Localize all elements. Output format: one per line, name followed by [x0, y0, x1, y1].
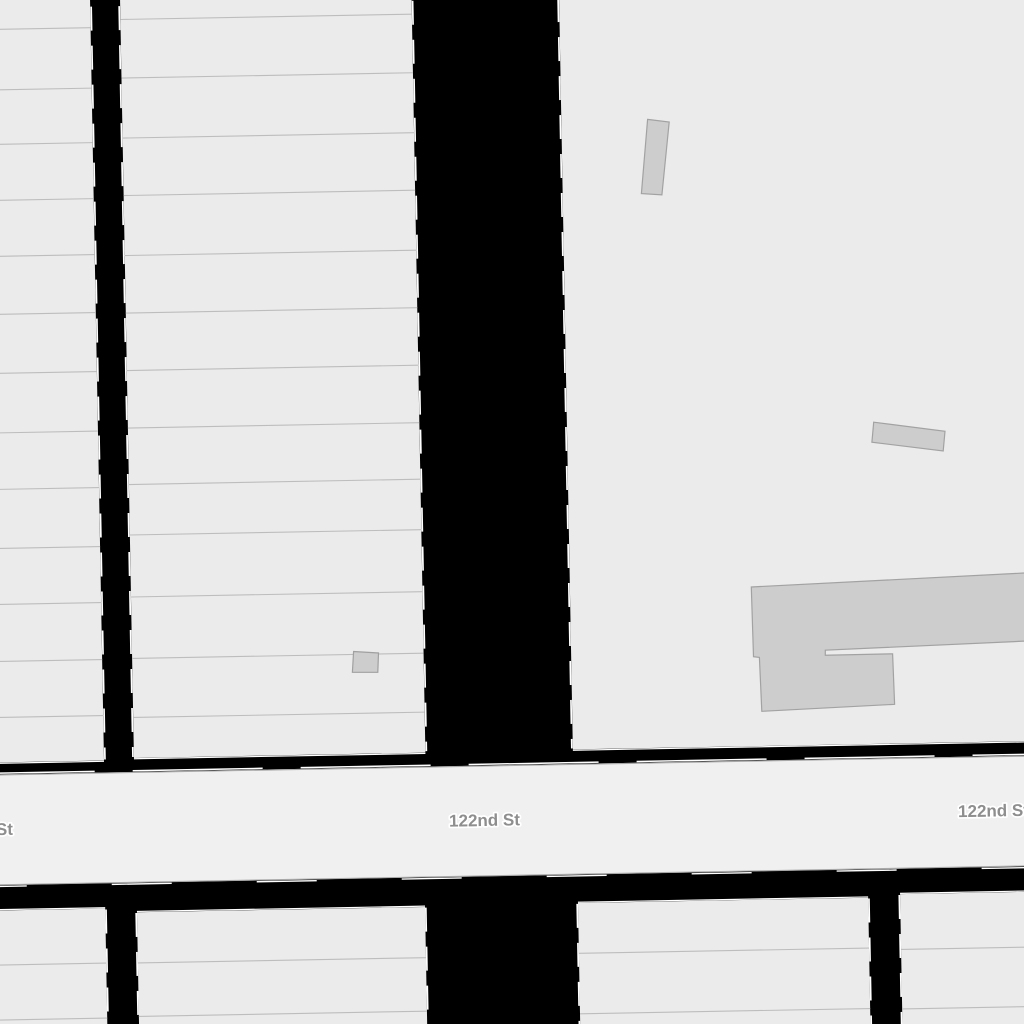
svg-text:122nd St: 122nd St	[0, 820, 13, 840]
svg-text:122nd St: 122nd St	[449, 810, 521, 830]
svg-text:122nd St: 122nd St	[958, 801, 1024, 821]
